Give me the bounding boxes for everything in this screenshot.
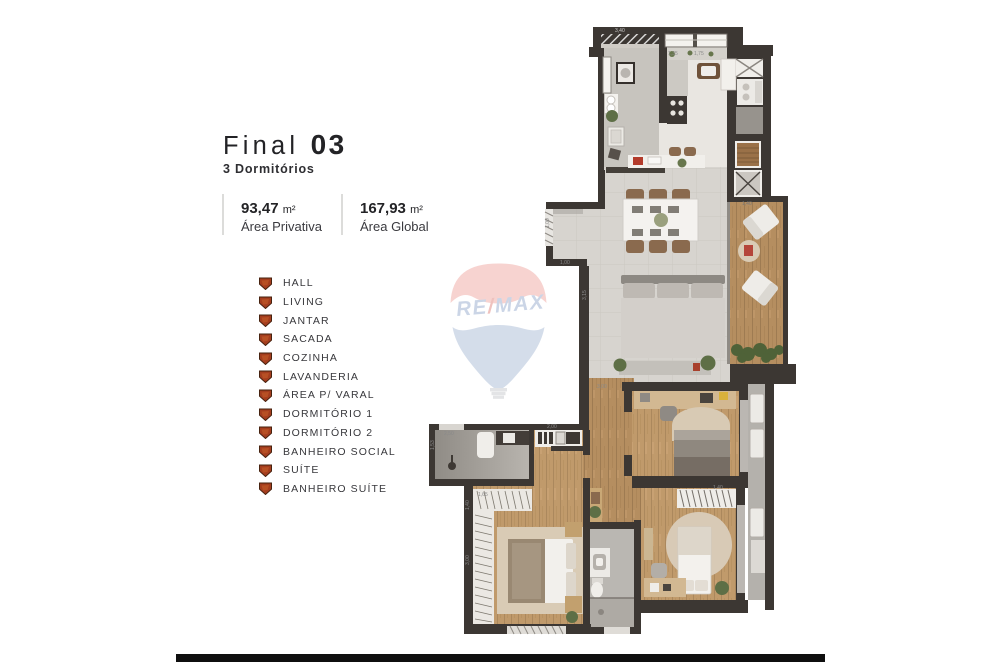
svg-text:3,00: 3,00 xyxy=(465,555,471,565)
svg-text:1,40: 1,40 xyxy=(713,485,723,491)
svg-text:2,50: 2,50 xyxy=(444,431,454,437)
svg-text:1,40: 1,40 xyxy=(465,500,471,510)
svg-text:2,00: 2,00 xyxy=(547,424,557,430)
svg-text:3,40: 3,40 xyxy=(615,28,625,34)
svg-text:3,15: 3,15 xyxy=(582,290,588,300)
svg-text:1,65: 1,65 xyxy=(478,492,488,498)
svg-text:1,75: 1,75 xyxy=(694,51,704,57)
svg-text:1,35: 1,35 xyxy=(668,51,678,57)
svg-text:1,00: 1,00 xyxy=(545,218,551,228)
svg-text:1,53: 1,53 xyxy=(430,440,436,450)
svg-text:1,40: 1,40 xyxy=(742,201,752,207)
svg-text:3,00: 3,00 xyxy=(597,384,607,390)
svg-text:1,00: 1,00 xyxy=(560,260,570,266)
